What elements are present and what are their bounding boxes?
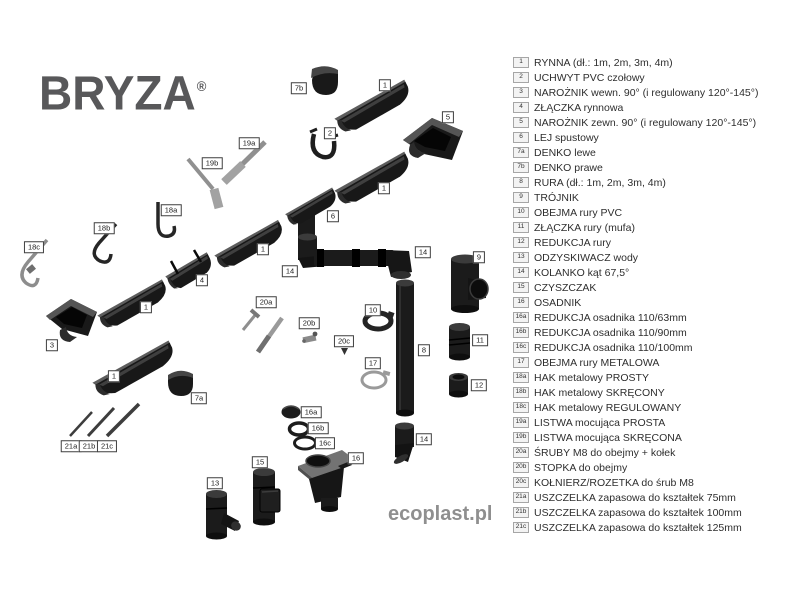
legend-item-number: 20b (513, 462, 529, 473)
part-callout-19a: 19a (239, 137, 260, 149)
legend-item-label: DENKO lewe (534, 147, 596, 159)
legend-item-number: 16b (513, 327, 529, 338)
legend-item-label: LISTWA mocująca SKRĘCONA (534, 432, 682, 444)
part-callout-18a: 18a (161, 204, 182, 216)
legend-item-label: RURA (dł.: 1m, 2m, 3m, 4m) (534, 177, 666, 189)
legend-row-14: 14KOLANKO kąt 67,5° (513, 265, 797, 280)
legend-row-19a: 19aLISTWA mocująca PROSTA (513, 415, 797, 430)
part-callout-5: 5 (442, 111, 454, 123)
part-callout-16b: 16b (308, 422, 329, 434)
legend-item-number: 7a (513, 147, 529, 158)
legend-item-label: NAROŻNIK zewn. 90° (i regulowany 120°-14… (534, 117, 756, 129)
legend-item-label: OBEJMA rury METALOWA (534, 357, 659, 369)
legend-item-number: 15 (513, 282, 529, 293)
legend-item-label: DENKO prawe (534, 162, 603, 174)
legend-row-1: 1RYNNA (dł.: 1m, 2m, 3m, 4m) (513, 55, 797, 70)
part-callout-1: 1 (379, 79, 391, 91)
legend-row-3: 3NAROŻNIK wewn. 90° (i regulowany 120°-1… (513, 85, 797, 100)
part-callout-21c: 21c (97, 440, 117, 452)
legend-item-label: OSADNIK (534, 297, 581, 309)
part-callout-13: 13 (207, 477, 223, 489)
legend-item-label: HAK metalowy SKRĘCONY (534, 387, 665, 399)
legend-item-label: CZYSZCZAK (534, 282, 596, 294)
part-callout-14: 14 (416, 433, 432, 445)
part-callout-1: 1 (140, 301, 152, 313)
catalog-page: BRYZA® (0, 0, 800, 600)
legend-item-number: 18c (513, 402, 529, 413)
legend-row-7b: 7bDENKO prawe (513, 160, 797, 175)
legend-item-number: 21c (513, 522, 529, 533)
part-callout-16: 16 (348, 452, 364, 464)
part-callout-20b: 20b (299, 317, 320, 329)
part-callout-17: 17 (365, 357, 381, 369)
legend-row-13: 13ODZYSKIWACZ wody (513, 250, 797, 265)
legend-item-number: 19a (513, 417, 529, 428)
part-callout-18b: 18b (94, 222, 115, 234)
legend-row-15: 15CZYSZCZAK (513, 280, 797, 295)
legend-item-label: KOŁNIERZ/ROZETKA do śrub M8 (534, 477, 694, 489)
legend-item-number: 5 (513, 117, 529, 128)
legend-item-label: USZCZELKA zapasowa do kształtek 125mm (534, 522, 742, 534)
legend-row-16a: 16aREDUKCJA osadnika 110/63mm (513, 310, 797, 325)
legend-row-10: 10OBEJMA rury PVC (513, 205, 797, 220)
legend-row-16b: 16bREDUKCJA osadnika 110/90mm (513, 325, 797, 340)
legend-row-20c: 20cKOŁNIERZ/ROZETKA do śrub M8 (513, 475, 797, 490)
part-callout-12: 12 (471, 379, 487, 391)
legend-item-label: USZCZELKA zapasowa do kształtek 75mm (534, 492, 736, 504)
part-callout-4: 4 (196, 274, 208, 286)
legend-row-8: 8RURA (dł.: 1m, 2m, 3m, 4m) (513, 175, 797, 190)
legend-row-18c: 18cHAK metalowy REGULOWANY (513, 400, 797, 415)
legend-item-label: STOPKA do obejmy (534, 462, 627, 474)
legend-row-2: 2UCHWYT PVC czołowy (513, 70, 797, 85)
part-callout-3: 3 (46, 339, 58, 351)
legend-item-number: 7b (513, 162, 529, 173)
legend-row-20b: 20bSTOPKA do obejmy (513, 460, 797, 475)
legend-item-label: ODZYSKIWACZ wody (534, 252, 638, 264)
part-callout-11: 11 (472, 334, 488, 346)
part-callout-14: 14 (282, 265, 298, 277)
part-callout-16a: 16a (301, 406, 322, 418)
part-callout-2: 2 (324, 127, 336, 139)
legend-item-label: KOLANKO kąt 67,5° (534, 267, 629, 279)
part-callout-15: 15 (252, 456, 268, 468)
part-callout-16c: 16c (315, 437, 335, 449)
legend-item-number: 21a (513, 492, 529, 503)
legend-item-number: 19b (513, 432, 529, 443)
legend-item-label: LISTWA mocująca PROSTA (534, 417, 665, 429)
part-callout-6: 6 (327, 210, 339, 222)
watermark-text: ecoplast.pl (388, 503, 492, 526)
legend-item-number: 3 (513, 87, 529, 98)
legend-item-label: ZŁĄCZKA rynnowa (534, 102, 623, 114)
legend-item-label: NAROŻNIK wewn. 90° (i regulowany 120°-14… (534, 87, 758, 99)
legend-item-number: 4 (513, 102, 529, 113)
part-callout-1: 1 (378, 182, 390, 194)
part-callout-8: 8 (418, 344, 430, 356)
legend-item-label: USZCZELKA zapasowa do kształtek 100mm (534, 507, 742, 519)
legend-item-number: 16 (513, 297, 529, 308)
legend-row-21c: 21cUSZCZELKA zapasowa do kształtek 125mm (513, 520, 797, 535)
legend-item-number: 17 (513, 357, 529, 368)
legend-row-6: 6LEJ spustowy (513, 130, 797, 145)
part-callout-14: 14 (415, 246, 431, 258)
legend-item-number: 21b (513, 507, 529, 518)
legend-item-label: HAK metalowy PROSTY (534, 372, 649, 384)
legend-item-number: 18b (513, 387, 529, 398)
legend-item-label: ZŁĄCZKA rury (mufa) (534, 222, 635, 234)
legend-item-number: 14 (513, 267, 529, 278)
part-callout-1: 1 (257, 243, 269, 255)
parts-legend: 1RYNNA (dł.: 1m, 2m, 3m, 4m)2UCHWYT PVC … (513, 55, 797, 535)
legend-item-label: OBEJMA rury PVC (534, 207, 622, 219)
legend-item-label: REDUKCJA osadnika 110/90mm (534, 327, 687, 339)
legend-row-5: 5NAROŻNIK zewn. 90° (i regulowany 120°-1… (513, 115, 797, 130)
legend-item-label: LEJ spustowy (534, 132, 599, 144)
part-callout-18c: 18c (24, 241, 44, 253)
part-callout-9: 9 (473, 251, 485, 263)
legend-item-number: 6 (513, 132, 529, 143)
legend-item-number: 16c (513, 342, 529, 353)
legend-row-18b: 18bHAK metalowy SKRĘCONY (513, 385, 797, 400)
legend-row-20a: 20aŚRUBY M8 do obejmy + kołek (513, 445, 797, 460)
legend-item-number: 10 (513, 207, 529, 218)
legend-item-number: 20c (513, 477, 529, 488)
legend-item-label: REDUKCJA rury (534, 237, 611, 249)
legend-item-number: 13 (513, 252, 529, 263)
legend-item-label: ŚRUBY M8 do obejmy + kołek (534, 447, 675, 459)
legend-item-number: 8 (513, 177, 529, 188)
legend-row-19b: 19bLISTWA mocująca SKRĘCONA (513, 430, 797, 445)
legend-item-number: 11 (513, 222, 529, 233)
legend-item-label: REDUKCJA osadnika 110/100mm (534, 342, 693, 354)
legend-item-label: REDUKCJA osadnika 110/63mm (534, 312, 687, 324)
part-callout-10: 10 (365, 304, 381, 316)
legend-row-18a: 18aHAK metalowy PROSTY (513, 370, 797, 385)
part-callout-1: 1 (108, 370, 120, 382)
legend-item-number: 1 (513, 57, 529, 68)
legend-item-number: 18a (513, 372, 529, 383)
legend-row-16c: 16cREDUKCJA osadnika 110/100mm (513, 340, 797, 355)
part-callout-20c: 20c (334, 335, 354, 347)
legend-item-number: 20a (513, 447, 529, 458)
legend-row-9: 9TRÓJNIK (513, 190, 797, 205)
legend-item-label: RYNNA (dł.: 1m, 2m, 3m, 4m) (534, 57, 673, 69)
legend-row-12: 12REDUKCJA rury (513, 235, 797, 250)
legend-row-7a: 7aDENKO lewe (513, 145, 797, 160)
legend-item-number: 12 (513, 237, 529, 248)
legend-row-16: 16OSADNIK (513, 295, 797, 310)
legend-row-21a: 21aUSZCZELKA zapasowa do kształtek 75mm (513, 490, 797, 505)
part-callout-20a: 20a (256, 296, 277, 308)
legend-row-4: 4ZŁĄCZKA rynnowa (513, 100, 797, 115)
part-callout-7a: 7a (191, 392, 207, 404)
part-callout-7b: 7b (291, 82, 307, 94)
legend-item-label: HAK metalowy REGULOWANY (534, 402, 681, 414)
legend-item-number: 9 (513, 192, 529, 203)
legend-item-number: 2 (513, 72, 529, 83)
legend-item-label: TRÓJNIK (534, 192, 579, 204)
part-callout-19b: 19b (202, 157, 223, 169)
legend-row-17: 17OBEJMA rury METALOWA (513, 355, 797, 370)
legend-item-label: UCHWYT PVC czołowy (534, 72, 645, 84)
legend-row-11: 11ZŁĄCZKA rury (mufa) (513, 220, 797, 235)
legend-item-number: 16a (513, 312, 529, 323)
legend-row-21b: 21bUSZCZELKA zapasowa do kształtek 100mm (513, 505, 797, 520)
